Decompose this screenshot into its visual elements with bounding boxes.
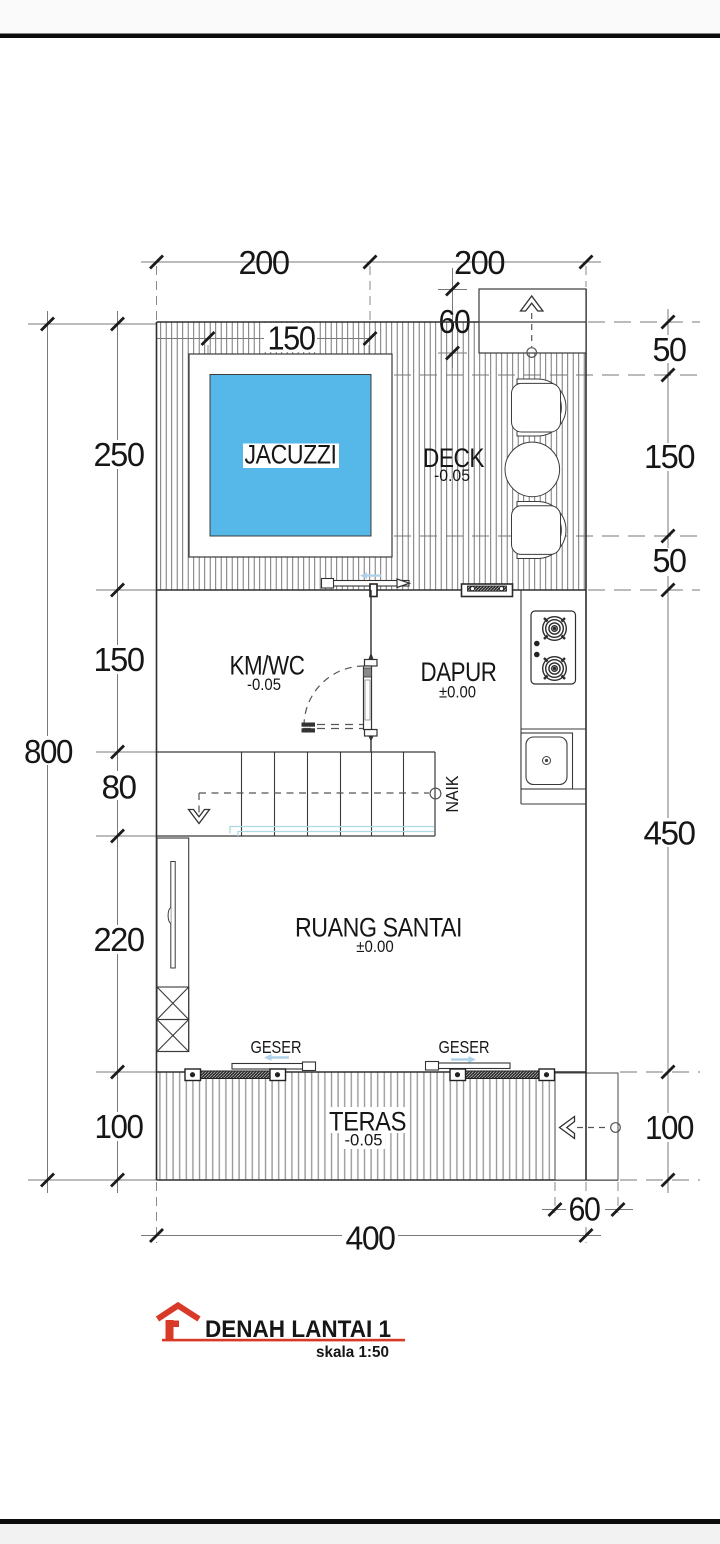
svg-text:GESER: GESER: [251, 1037, 302, 1057]
svg-text:GESER: GESER: [439, 1037, 490, 1057]
svg-text:DAPUR: DAPUR: [421, 657, 497, 687]
svg-text:150: 150: [94, 641, 145, 678]
svg-text:80: 80: [102, 769, 137, 806]
svg-text:100: 100: [95, 1108, 144, 1145]
svg-text:50: 50: [653, 331, 687, 368]
svg-text:450: 450: [644, 815, 696, 852]
svg-text:50: 50: [653, 542, 687, 579]
svg-text:-0.05: -0.05: [247, 676, 281, 694]
svg-text:200: 200: [454, 244, 505, 281]
svg-text:150: 150: [268, 320, 316, 357]
svg-text:-0.05: -0.05: [434, 467, 470, 485]
svg-text:60: 60: [569, 1191, 601, 1228]
svg-text:-0.05: -0.05: [345, 1132, 383, 1150]
svg-text:JACUZZI: JACUZZI: [245, 440, 337, 470]
svg-text:±0.00: ±0.00: [439, 684, 476, 702]
svg-text:200: 200: [239, 244, 290, 281]
svg-text:220: 220: [94, 921, 145, 958]
svg-text:250: 250: [94, 436, 145, 473]
svg-text:±0.00: ±0.00: [356, 938, 394, 956]
svg-text:NAIK: NAIK: [442, 775, 462, 812]
svg-text:skala 1:50: skala 1:50: [316, 1344, 389, 1361]
svg-text:800: 800: [24, 733, 73, 770]
svg-text:150: 150: [644, 438, 695, 475]
svg-text:400: 400: [346, 1220, 396, 1257]
svg-text:100: 100: [645, 1109, 694, 1146]
